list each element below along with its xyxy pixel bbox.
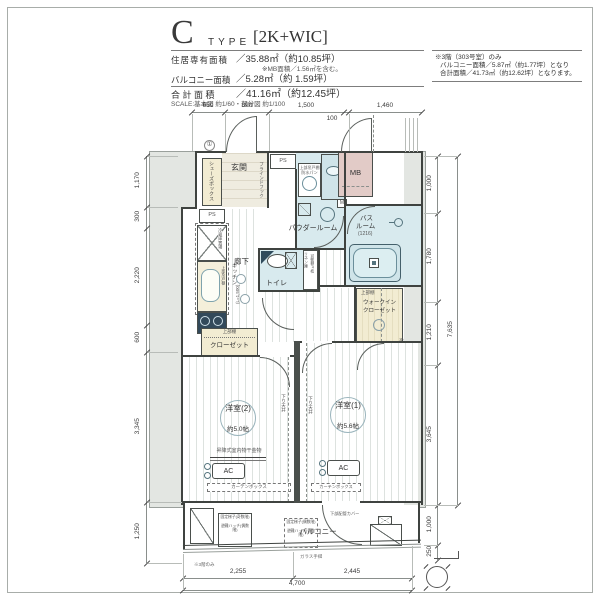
ext-line bbox=[349, 114, 350, 151]
dim-bottom-2255: 2,255 bbox=[224, 569, 252, 576]
ac-label: AC bbox=[327, 465, 360, 472]
compass-circle bbox=[426, 566, 448, 588]
partition-bath-bottom bbox=[320, 285, 422, 287]
ext-line bbox=[424, 505, 458, 506]
walk-in-closet bbox=[356, 288, 403, 342]
partition-toilet-bottom bbox=[258, 290, 320, 292]
mb-dashed-line bbox=[342, 186, 369, 187]
dim-bottom-total: 4,700 bbox=[283, 581, 311, 588]
hall-floor bbox=[300, 288, 354, 341]
compass-arm bbox=[434, 558, 458, 559]
ext-line bbox=[293, 552, 294, 578]
duct-line bbox=[413, 118, 414, 152]
dim-top-100: 100 bbox=[324, 116, 340, 123]
balcony-left-wall bbox=[183, 503, 185, 550]
wic-label-1: ウォークイン bbox=[357, 301, 402, 307]
partition-bath-left bbox=[344, 153, 346, 287]
wall-left-upper bbox=[195, 151, 197, 209]
room2-size: 約5.0帖 bbox=[219, 427, 257, 434]
wic-label-2: クローゼット bbox=[357, 309, 402, 315]
type-word: TYPE bbox=[208, 38, 250, 48]
wic-divider bbox=[381, 288, 382, 342]
waterproof-pan-label: 防水パン bbox=[298, 171, 321, 175]
escape-hatch-even-label: 避難ハッチ(偶数階) bbox=[220, 524, 250, 533]
partition-bath-top bbox=[344, 204, 422, 206]
balcony-right-wall bbox=[418, 503, 420, 543]
title-rule-2 bbox=[171, 86, 424, 87]
down-ceiling-label: 下り天井 bbox=[308, 396, 313, 414]
ext-line bbox=[424, 156, 458, 157]
partition-linen-right bbox=[318, 250, 320, 290]
dim-right-1000: 1,000 bbox=[427, 168, 434, 198]
ext-line bbox=[424, 213, 438, 214]
shoes-box-label: シューズボックス bbox=[208, 161, 213, 201]
dim-right-b250: 250 bbox=[427, 538, 434, 564]
area-line1-label: 住居専有面積 bbox=[171, 56, 228, 65]
hall-circle-mark bbox=[240, 294, 250, 304]
wall-step bbox=[181, 207, 197, 209]
dim-line-bottom bbox=[183, 578, 412, 579]
type-spec: [2K+WIC] bbox=[253, 28, 328, 45]
stove-burner bbox=[213, 316, 223, 326]
side-note-3: 合計面積／41.73㎡（約12.62坪）となります。 bbox=[440, 71, 576, 78]
bath-drain-dot bbox=[372, 261, 376, 265]
dim-top-1460: 1,460 bbox=[371, 103, 399, 110]
linen-label: リネン庫 bbox=[304, 252, 308, 268]
dim-line-bottom-total bbox=[183, 590, 412, 591]
area-line2-value: ／5.28㎡（約 1.59坪） bbox=[236, 75, 333, 85]
dim-line-right-inner bbox=[437, 156, 438, 560]
curtain-box-label: カーテンボックス bbox=[311, 485, 361, 489]
upper-shelf-label: 上部棚 bbox=[361, 291, 375, 296]
mb-door-leaf bbox=[371, 118, 372, 152]
drying-hardware-label: 昇降式室内物干金物 bbox=[206, 449, 272, 454]
room1-label: 洋室(1) bbox=[326, 402, 370, 410]
dim-left-2220: 2,220 bbox=[135, 260, 142, 290]
wall-bottom-window bbox=[181, 501, 423, 503]
stove-burner bbox=[200, 316, 210, 326]
area-line1-value: ／35.88㎡（約10.85坪） bbox=[236, 55, 341, 65]
toilet-washlet bbox=[285, 252, 297, 269]
kitchen-label: キッチン bbox=[230, 263, 236, 285]
dim-top-650: 650 bbox=[196, 103, 220, 110]
ext-line bbox=[148, 352, 178, 353]
side-note-2: バルコニー面積／5.87㎡（約1.77坪）となり bbox=[440, 63, 569, 70]
ext-line bbox=[225, 114, 226, 151]
dim-bottom-2445: 2,445 bbox=[338, 569, 366, 576]
ac-hook bbox=[204, 463, 211, 470]
dim-right-1780: 1,780 bbox=[427, 241, 434, 271]
dim-right-3645: 3,645 bbox=[427, 419, 434, 449]
ext-line bbox=[148, 156, 178, 157]
escape-hatch-odd-label: 避難ハッチ(奇数階) bbox=[286, 529, 316, 538]
ac-hook bbox=[204, 472, 211, 479]
kitchen-sink bbox=[201, 269, 220, 302]
door-gap-balcony bbox=[322, 501, 360, 503]
ext-line bbox=[183, 554, 184, 590]
wall-center bbox=[294, 341, 300, 503]
area-line3-label: 合 計 面 積 bbox=[171, 91, 215, 100]
ac-hook bbox=[319, 469, 326, 476]
title-rule-1 bbox=[171, 50, 424, 51]
fixed-ladder-even-label: 固定梯子(偶数階) bbox=[281, 521, 321, 525]
circled-number-1-text: ① bbox=[204, 142, 215, 149]
partition-powder-left bbox=[295, 169, 297, 250]
movable-shelf-label: 可動棚4枚 bbox=[310, 254, 314, 273]
washing-machine-drum bbox=[302, 176, 317, 191]
side-note-1: ※3階（303号室）のみ bbox=[435, 55, 501, 62]
shower-arm bbox=[389, 222, 394, 223]
fridge-label: 冷蔵庫置場 bbox=[218, 228, 222, 249]
upper-cabinet-label: 上部吊戸棚 bbox=[221, 266, 225, 285]
ext-line bbox=[148, 563, 182, 564]
toilet-label: トイレ bbox=[266, 280, 287, 287]
ext-line bbox=[424, 545, 438, 546]
dim-left-600: 600 bbox=[135, 322, 142, 352]
hall-floor bbox=[320, 250, 344, 285]
ext-line bbox=[269, 114, 270, 151]
fixed-ladder-odd-label: 固定梯子(奇数階) bbox=[215, 516, 255, 520]
dim-right-total: 7,635 bbox=[448, 312, 455, 346]
shower-head bbox=[394, 218, 403, 227]
hall-circle-mark bbox=[236, 274, 246, 284]
side-note-rule-top bbox=[432, 50, 582, 51]
dim-right-b1000: 1,000 bbox=[427, 509, 434, 539]
ext-line bbox=[424, 302, 438, 303]
closet-label: クローゼット bbox=[201, 343, 258, 350]
third-floor-only-note: ※3階のみ bbox=[194, 563, 215, 568]
floorplan-page: { "header": { "type_letter": "C", "type_… bbox=[0, 0, 600, 600]
entrance-label: 玄関 bbox=[231, 164, 247, 172]
ext-line bbox=[148, 502, 182, 503]
mirror-cabinet bbox=[298, 203, 311, 216]
ac-hook bbox=[319, 460, 326, 467]
ac-label: AC bbox=[212, 468, 245, 475]
hall-label: 廊下 bbox=[234, 258, 249, 266]
mb-area-note: ※MB面積／1.56㎡を含む。 bbox=[262, 67, 342, 74]
dim-left-1170: 1,170 bbox=[135, 165, 142, 195]
ps-label: PS bbox=[270, 159, 296, 165]
drying-bar bbox=[210, 457, 266, 461]
dim-top-890: 890 bbox=[235, 103, 259, 110]
upper-shelf-label: 上部棚 bbox=[201, 330, 258, 335]
duct-line bbox=[409, 118, 410, 152]
compass-arm bbox=[458, 551, 459, 559]
room1-size: 約5.6帖 bbox=[329, 424, 367, 431]
partition-toilet-left bbox=[258, 250, 260, 292]
duct-line bbox=[417, 118, 418, 152]
dim-left-1250: 1,250 bbox=[135, 516, 142, 546]
partition-powder-bottom bbox=[258, 248, 346, 250]
pipe-cover-label: 下部配管カバー bbox=[330, 512, 359, 516]
ext-line bbox=[148, 207, 178, 208]
partition-entrance-right bbox=[267, 153, 269, 208]
room2-label: 洋室(2) bbox=[216, 405, 260, 413]
glass-rail-label: ガラス手摺 bbox=[300, 555, 323, 560]
dim-right-1210: 1,210 bbox=[427, 317, 434, 347]
entrance-hook-label: ブラインドフック bbox=[259, 162, 264, 198]
scale-note: SCALE:基本図 約1/60・部分図 約1/100 bbox=[171, 102, 285, 109]
entrance-door-leaf bbox=[256, 116, 257, 152]
area-line2-label: バルコニー面積 bbox=[171, 76, 230, 85]
down-ceiling-label: 下り天井 bbox=[281, 394, 286, 412]
duct-line bbox=[405, 118, 406, 152]
ext-line bbox=[192, 114, 193, 151]
ext-line bbox=[424, 365, 438, 366]
mb-boundary-dash bbox=[373, 115, 374, 152]
partition-wic-left bbox=[354, 287, 356, 343]
dim-left-3345: 3,345 bbox=[135, 411, 142, 441]
dim-top-1500: 1,500 bbox=[292, 103, 320, 110]
closet-shelf-line bbox=[204, 337, 255, 338]
area-line3-value: ／41.16㎡（約12.45坪） bbox=[236, 90, 346, 100]
type-letter: C bbox=[171, 16, 194, 50]
ps-label: PS bbox=[199, 213, 225, 219]
wic-circle-mark bbox=[373, 319, 385, 331]
curtain-box-label: カーテンボックス bbox=[207, 485, 291, 490]
dim-line-top bbox=[192, 112, 422, 113]
side-note-rule-bottom bbox=[432, 81, 582, 82]
ext-line bbox=[412, 546, 413, 590]
dim-left-300: 300 bbox=[135, 201, 142, 231]
balcony-planter-left bbox=[190, 508, 214, 544]
dim-line-right-outer bbox=[457, 156, 458, 505]
